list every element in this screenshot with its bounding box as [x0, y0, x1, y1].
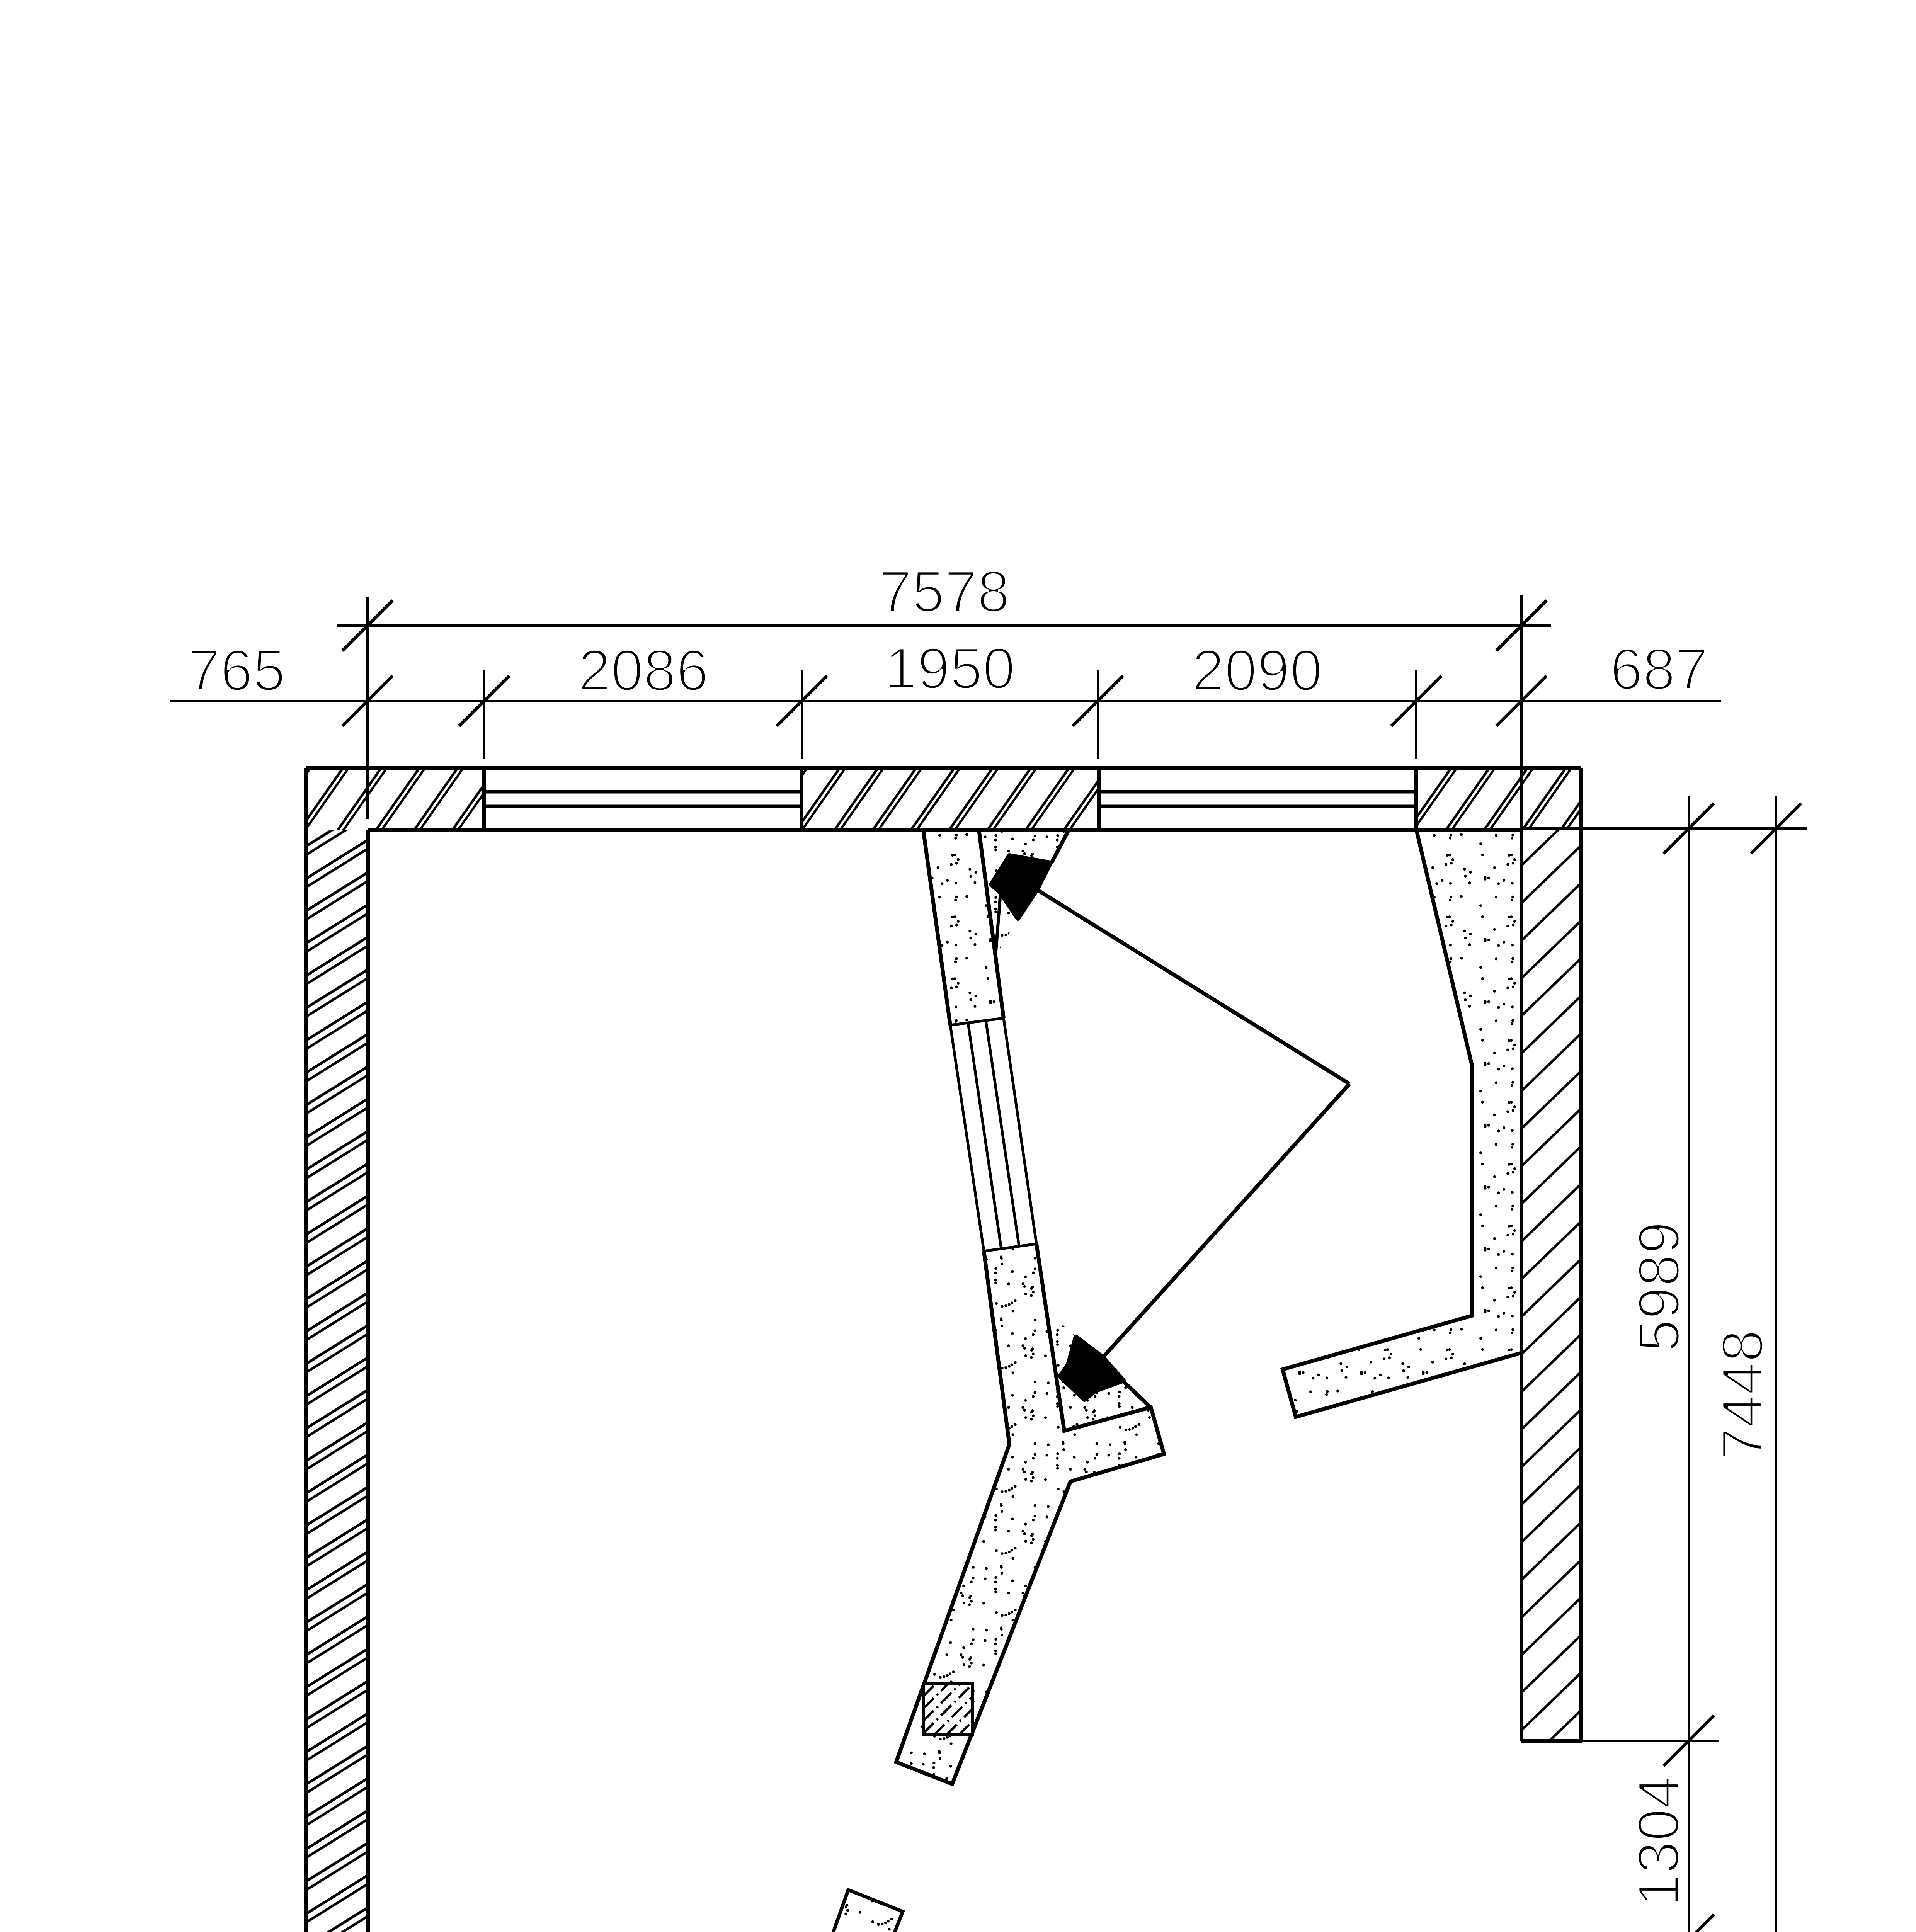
svg-text:765: 765 — [187, 638, 286, 703]
svg-text:2090: 2090 — [1192, 638, 1322, 703]
svg-text:7448: 7448 — [1710, 1330, 1775, 1460]
svg-text:687: 687 — [1610, 636, 1708, 702]
svg-text:1950: 1950 — [885, 636, 1015, 701]
svg-text:2086: 2086 — [578, 638, 709, 703]
svg-text:7578: 7578 — [879, 559, 1010, 624]
svg-text:5989: 5989 — [1626, 1221, 1692, 1352]
svg-text:1304: 1304 — [1626, 1776, 1691, 1906]
